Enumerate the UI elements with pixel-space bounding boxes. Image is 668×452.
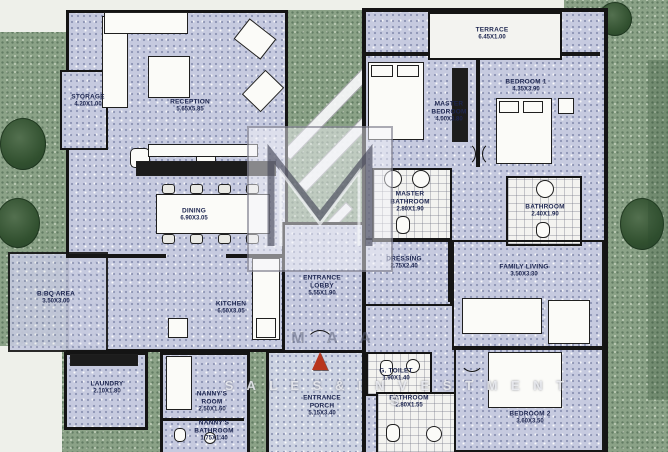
wardrobe bbox=[452, 68, 468, 142]
toilet-icon bbox=[536, 222, 550, 238]
coffee-table bbox=[148, 56, 190, 98]
side-table bbox=[548, 300, 590, 344]
bed bbox=[166, 356, 192, 410]
dining-chair bbox=[190, 184, 203, 194]
bathroom-lower-room bbox=[376, 392, 456, 452]
door-arc bbox=[460, 348, 484, 372]
g-toilet-room bbox=[366, 352, 432, 396]
dining-chair bbox=[190, 234, 203, 244]
sink-icon bbox=[412, 170, 430, 188]
door-arc bbox=[482, 142, 506, 166]
sofa bbox=[462, 298, 542, 334]
bbq-area-floor bbox=[8, 252, 108, 352]
bedroom-divider-wall bbox=[476, 55, 480, 167]
dining-chair bbox=[218, 184, 231, 194]
washer-counter bbox=[70, 354, 138, 366]
toilet-icon bbox=[380, 360, 393, 376]
sink-icon bbox=[406, 359, 420, 373]
toilet-icon bbox=[396, 216, 410, 234]
toilet-icon bbox=[174, 428, 186, 442]
pillow bbox=[397, 65, 419, 77]
nanny-divider-wall bbox=[160, 418, 244, 421]
sink-icon bbox=[204, 432, 216, 444]
storage-room bbox=[60, 70, 108, 150]
floor-plan: M A A S A L E S & I N V E S T M E N T S … bbox=[0, 0, 668, 452]
dining-table bbox=[156, 194, 270, 234]
paper-margin-bottom-left bbox=[0, 346, 62, 452]
sink-icon bbox=[536, 180, 554, 198]
dining-chair bbox=[246, 234, 259, 244]
tv-unit bbox=[136, 161, 276, 176]
sink-icon bbox=[426, 426, 442, 442]
dining-chair bbox=[162, 184, 175, 194]
terrace-deck bbox=[428, 12, 562, 60]
dining-chair bbox=[162, 234, 175, 244]
toilet-icon bbox=[386, 424, 400, 442]
nightstand bbox=[558, 98, 574, 114]
bed bbox=[488, 352, 562, 408]
kitchen-wall-left bbox=[66, 254, 166, 258]
dining-chair bbox=[218, 234, 231, 244]
pillow bbox=[499, 101, 519, 113]
tv-shelf bbox=[148, 144, 258, 157]
dining-chair bbox=[246, 184, 259, 194]
north-arrow-icon bbox=[312, 352, 328, 370]
sofa bbox=[104, 12, 188, 34]
sink-icon bbox=[384, 170, 402, 188]
kitchen-appliance bbox=[256, 318, 276, 338]
tree-icon bbox=[0, 118, 46, 170]
kitchen-appliance bbox=[168, 318, 188, 338]
dressing-room bbox=[362, 238, 452, 306]
tree-icon bbox=[0, 198, 40, 248]
pillow bbox=[371, 65, 393, 77]
hedge bbox=[648, 60, 668, 400]
door-arc bbox=[452, 142, 476, 166]
pillow bbox=[523, 101, 543, 113]
